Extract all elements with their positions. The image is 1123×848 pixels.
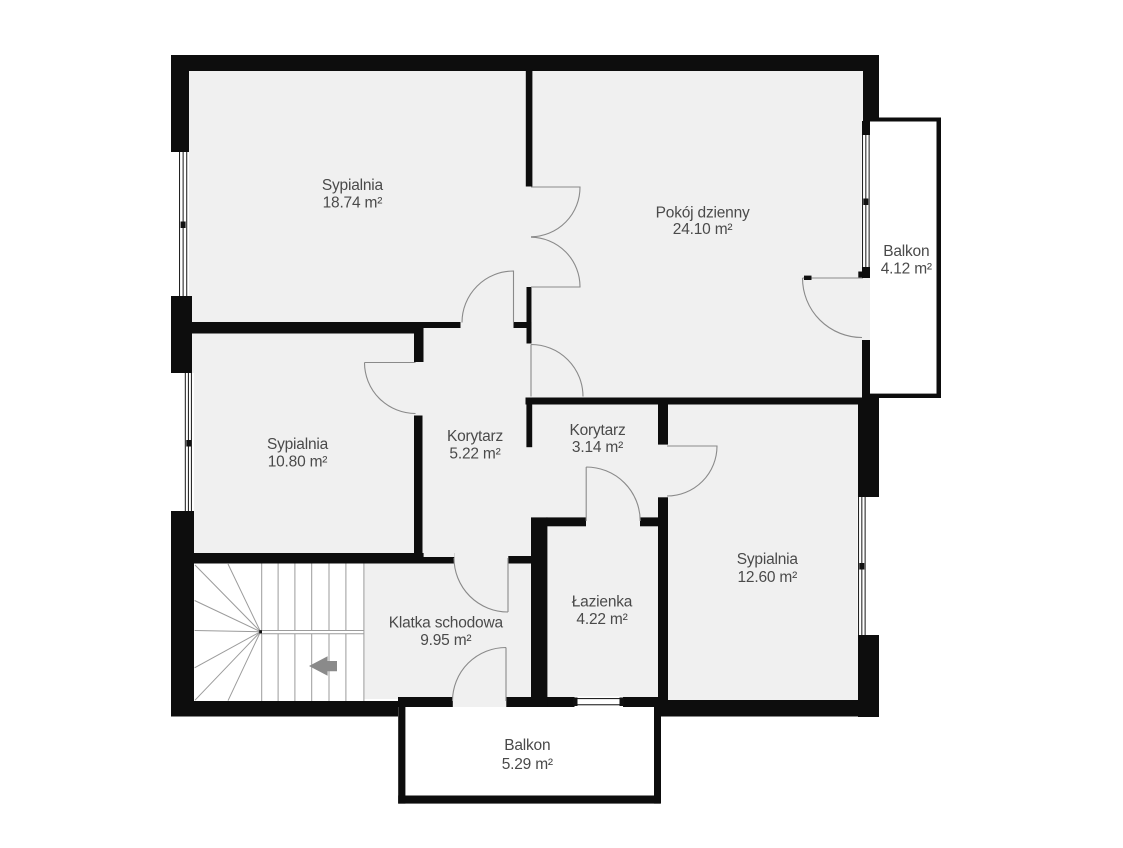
svg-text:5.22 m²: 5.22 m² (449, 446, 500, 463)
svg-text:12.60 m²: 12.60 m² (738, 569, 798, 586)
svg-text:Sypialnia: Sypialnia (737, 551, 799, 568)
svg-text:Korytarz: Korytarz (569, 422, 625, 439)
svg-text:10.80 m²: 10.80 m² (268, 454, 328, 471)
svg-text:18.74 m²: 18.74 m² (323, 195, 383, 212)
svg-text:Klatka schodowa: Klatka schodowa (389, 615, 504, 632)
svg-text:Sypialnia: Sypialnia (322, 177, 384, 194)
svg-text:Balkon: Balkon (504, 737, 550, 754)
svg-text:4.12 m²: 4.12 m² (881, 261, 932, 278)
svg-text:Łazienka: Łazienka (572, 594, 633, 611)
svg-text:Sypialnia: Sypialnia (267, 436, 329, 453)
svg-text:Korytarz: Korytarz (447, 428, 503, 445)
svg-text:9.95 m²: 9.95 m² (420, 632, 471, 649)
svg-text:Balkon: Balkon (883, 243, 929, 260)
svg-text:24.10 m²: 24.10 m² (673, 221, 733, 238)
svg-text:Pokój dzienny: Pokój dzienny (656, 205, 750, 222)
svg-text:4.22 m²: 4.22 m² (576, 611, 627, 628)
svg-text:5.29 m²: 5.29 m² (502, 756, 553, 773)
svg-text:3.14 m²: 3.14 m² (572, 439, 623, 456)
